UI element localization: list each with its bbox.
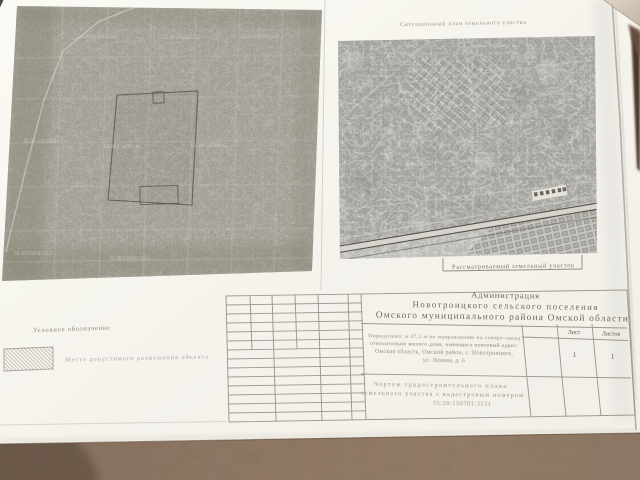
svg-text:Листов: Листов — [602, 332, 621, 338]
svg-text:Лист: Лист — [568, 330, 581, 336]
svg-text:55:20:150701:558: 55:20:150701:558 — [241, 34, 279, 40]
svg-text:55:20:150701:253: 55:20:150701:253 — [14, 251, 52, 257]
svg-text:55:20:150701:2531: 55:20:150701:2531 — [110, 256, 151, 262]
svg-text:Администрация: Администрация — [471, 290, 539, 301]
svg-text:55:20:150701:3531: 55:20:150701:3531 — [433, 400, 491, 408]
svg-text:55:20:150701:25: 55:20:150701:25 — [191, 143, 227, 149]
svg-text:55:20:110701:556: 55:20:110701:556 — [78, 34, 116, 40]
svg-text:55:20:150701:38: 55:20:150701:38 — [104, 144, 140, 150]
svg-text:1: 1 — [573, 351, 577, 359]
svg-text:1: 1 — [611, 353, 615, 361]
svg-text:55:20:150701:557: 55:20:150701:557 — [163, 35, 201, 41]
svg-text:ул. Ленина, д. 6: ул. Ленина, д. 6 — [423, 358, 465, 365]
svg-text:55:20:150701:2: 55:20:150701:2 — [24, 139, 57, 145]
